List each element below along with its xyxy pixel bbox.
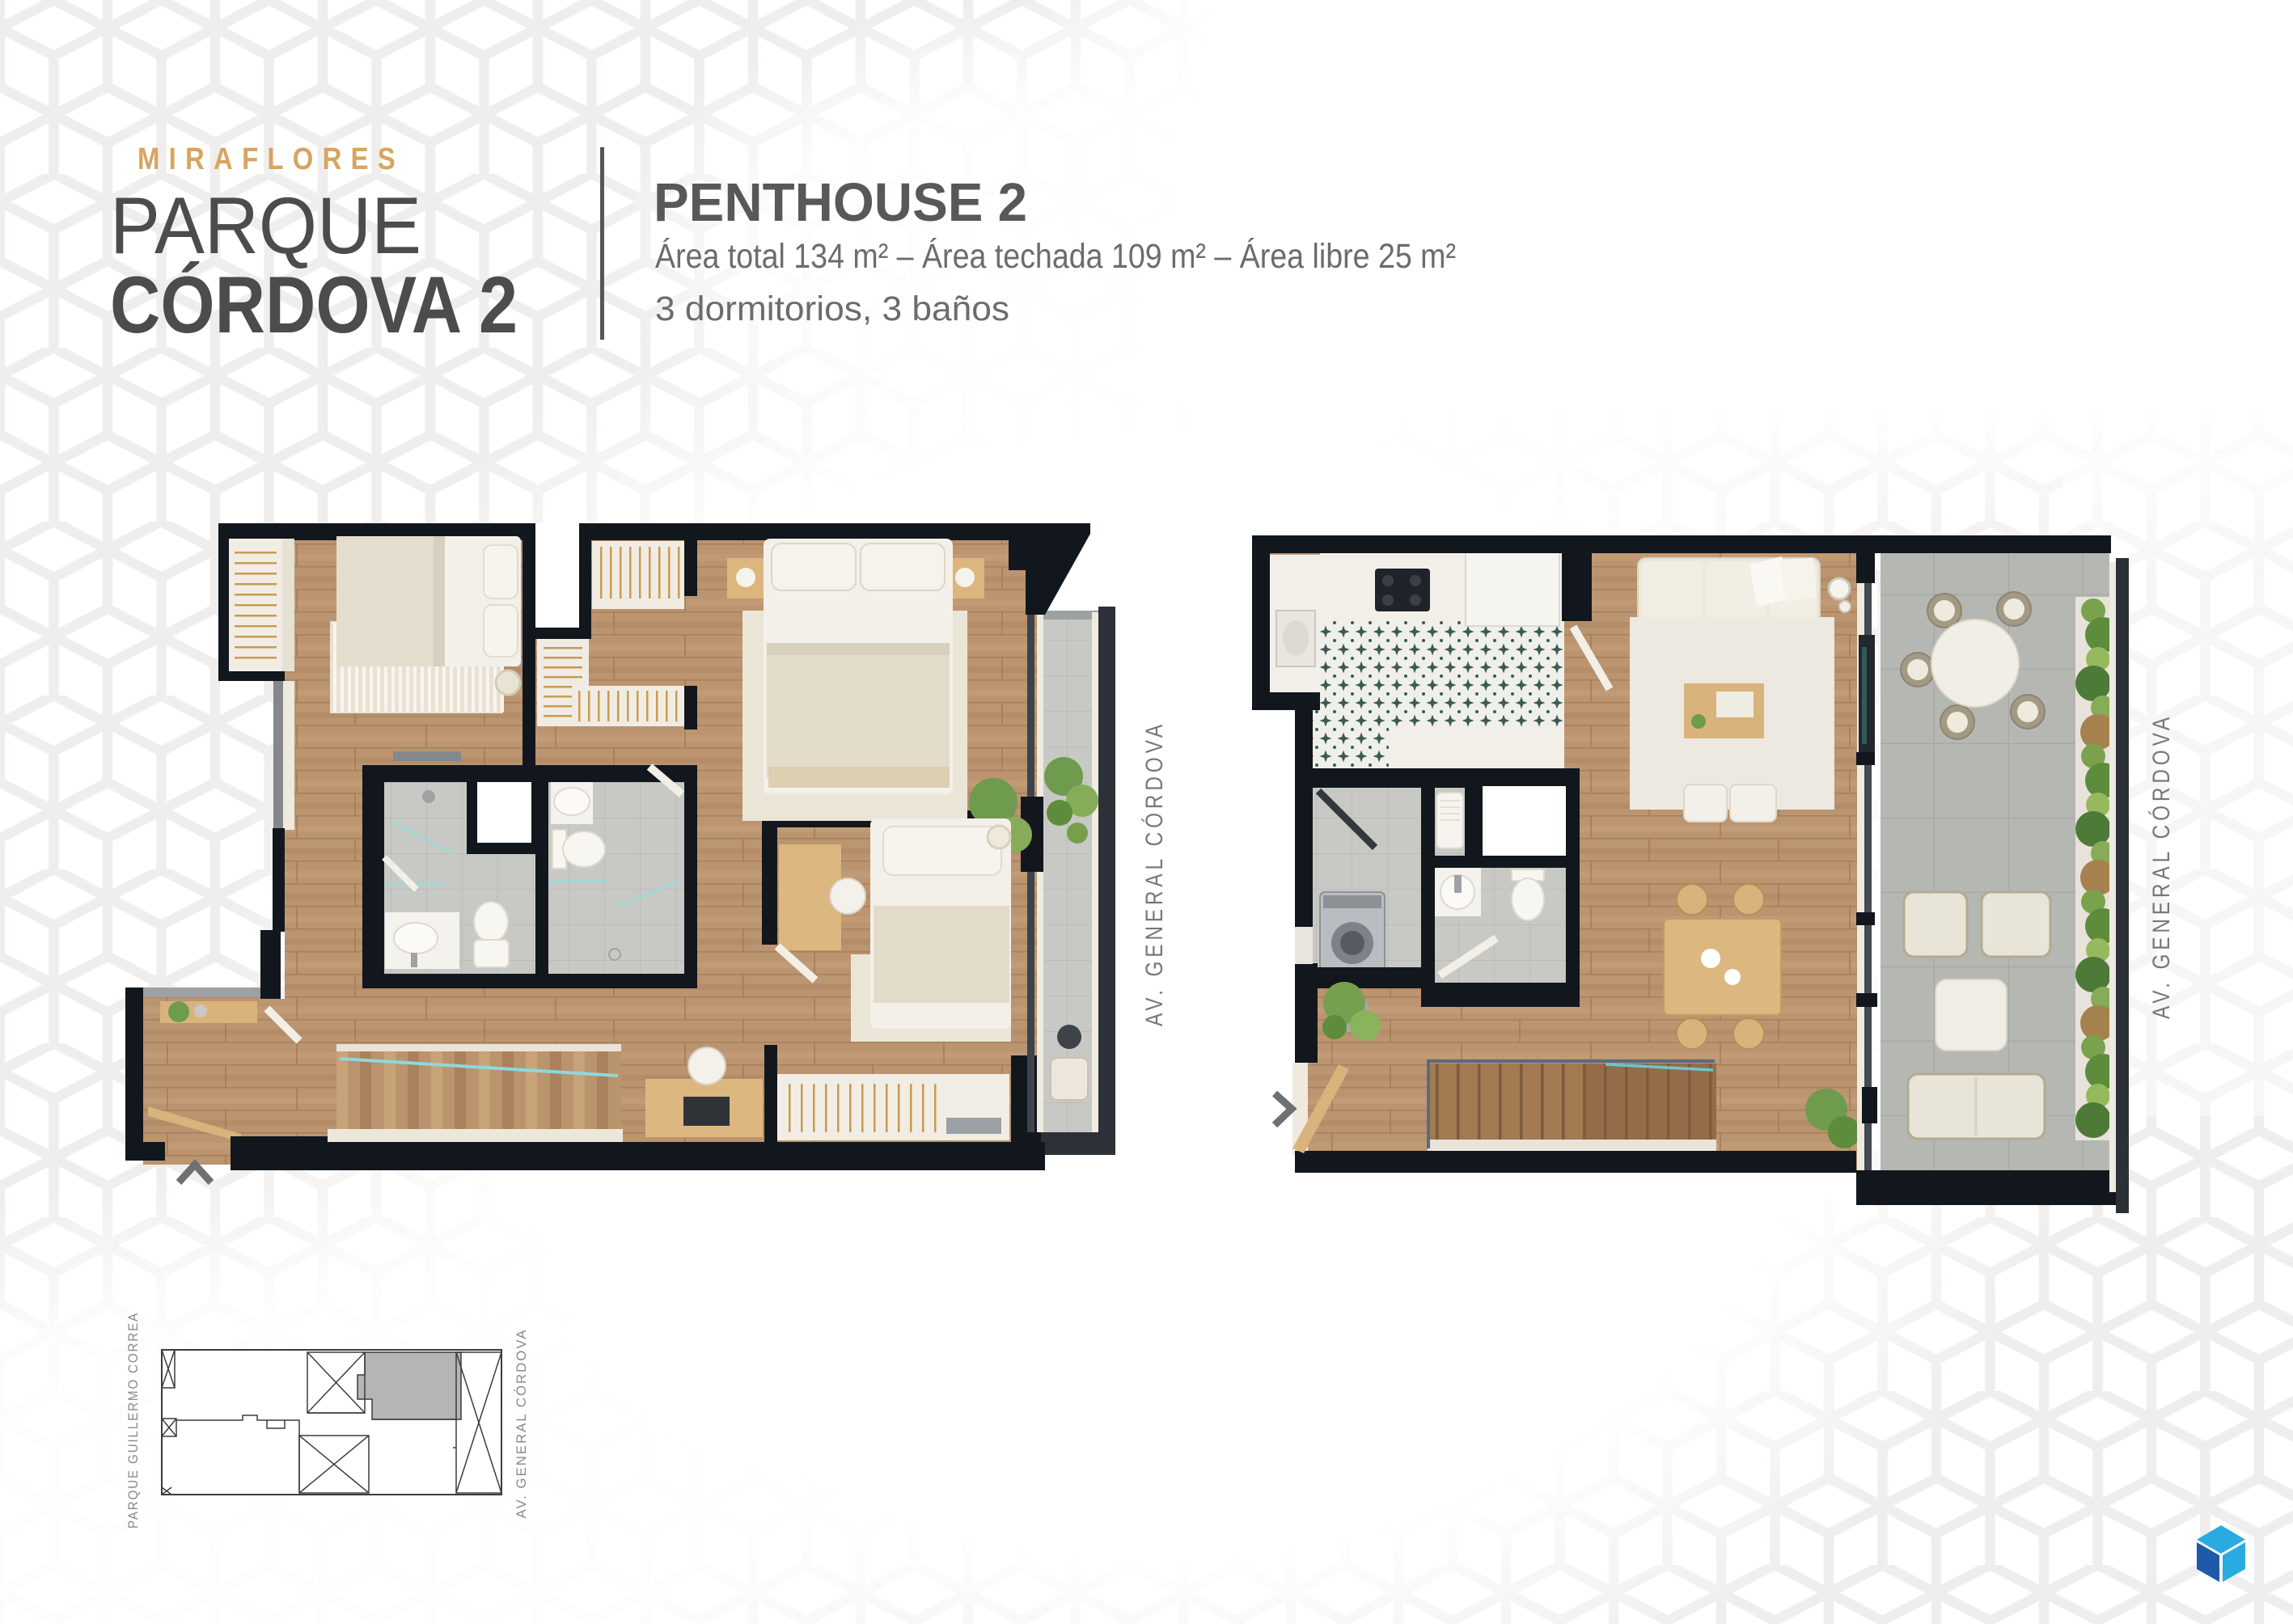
svg-text:CÓRDOVA 2: CÓRDOVA 2 bbox=[110, 260, 518, 349]
svg-text:3 dormitorios, 3 baños: 3 dormitorios, 3 baños bbox=[655, 290, 1009, 328]
svg-text:AV. GENERAL CÓRDOVA: AV. GENERAL CÓRDOVA bbox=[1141, 721, 1168, 1026]
svg-text:AV. GENERAL CÓRDOVA: AV. GENERAL CÓRDOVA bbox=[514, 1329, 529, 1519]
svg-text:Área total 134 m² – Área techa: Área total 134 m² – Área techada 109 m² … bbox=[655, 237, 1456, 276]
svg-text:PARQUE: PARQUE bbox=[110, 180, 421, 270]
svg-text:MIRAFLORES: MIRAFLORES bbox=[137, 142, 404, 176]
svg-text:PENTHOUSE 2: PENTHOUSE 2 bbox=[654, 172, 1027, 233]
svg-text:AV. GENERAL CÓRDOVA: AV. GENERAL CÓRDOVA bbox=[2148, 713, 2175, 1019]
svg-text:PARQUE GUILLERMO CORREA: PARQUE GUILLERMO CORREA bbox=[126, 1312, 141, 1529]
